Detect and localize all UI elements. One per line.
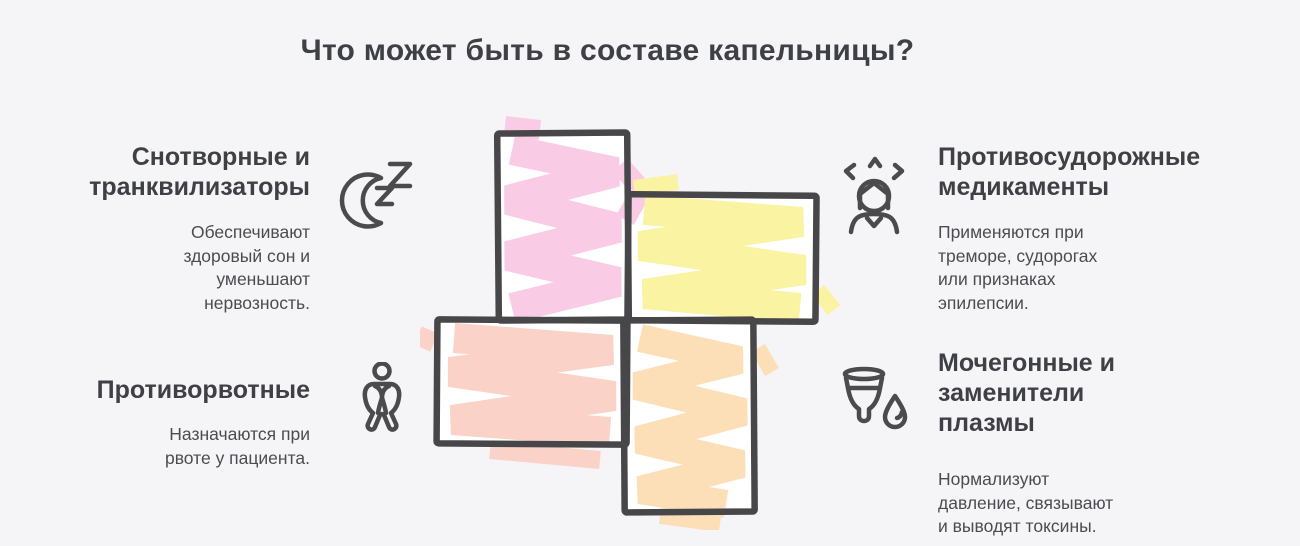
page-title: Что может быть в составе капельницы? xyxy=(0,34,1215,68)
iv-drip-cross-figure xyxy=(420,110,840,535)
section-description: Назначаются при рвоте у пациента. xyxy=(40,423,310,470)
section-antiemetics: Противорвотные Назначаются при рвоте у п… xyxy=(40,375,310,470)
section-title: Мочегонные и заменители плазмы xyxy=(938,348,1238,438)
stressed-person-icon xyxy=(841,156,907,240)
left-patch-scribble xyxy=(450,338,614,432)
section-description: Применяются при треморе, судорогах или п… xyxy=(938,221,1238,315)
section-sleep-tranquilizers: Снотворные и транквилизаторы Обеспечиваю… xyxy=(40,142,310,315)
section-title: Противорвотные xyxy=(40,375,310,405)
cup-drop-icon xyxy=(838,364,912,434)
section-description: Нормализуют давление, связывают и выводя… xyxy=(938,468,1238,539)
section-title: Противосудорожные медикаменты xyxy=(938,142,1238,202)
nauseous-person-icon xyxy=(356,362,408,440)
section-title: Снотворные и транквилизаторы xyxy=(40,142,310,202)
moon-zzz-icon xyxy=(336,156,416,240)
section-diuretics-plasma: Мочегонные и заменители плазмы Нормализу… xyxy=(938,348,1238,539)
section-anticonvulsants: Противосудорожные медикаменты Применяютс… xyxy=(938,142,1238,315)
right-patch-scribble xyxy=(640,210,804,308)
section-description: Обеспечивают здоровый сон и уменьшают не… xyxy=(40,221,310,315)
